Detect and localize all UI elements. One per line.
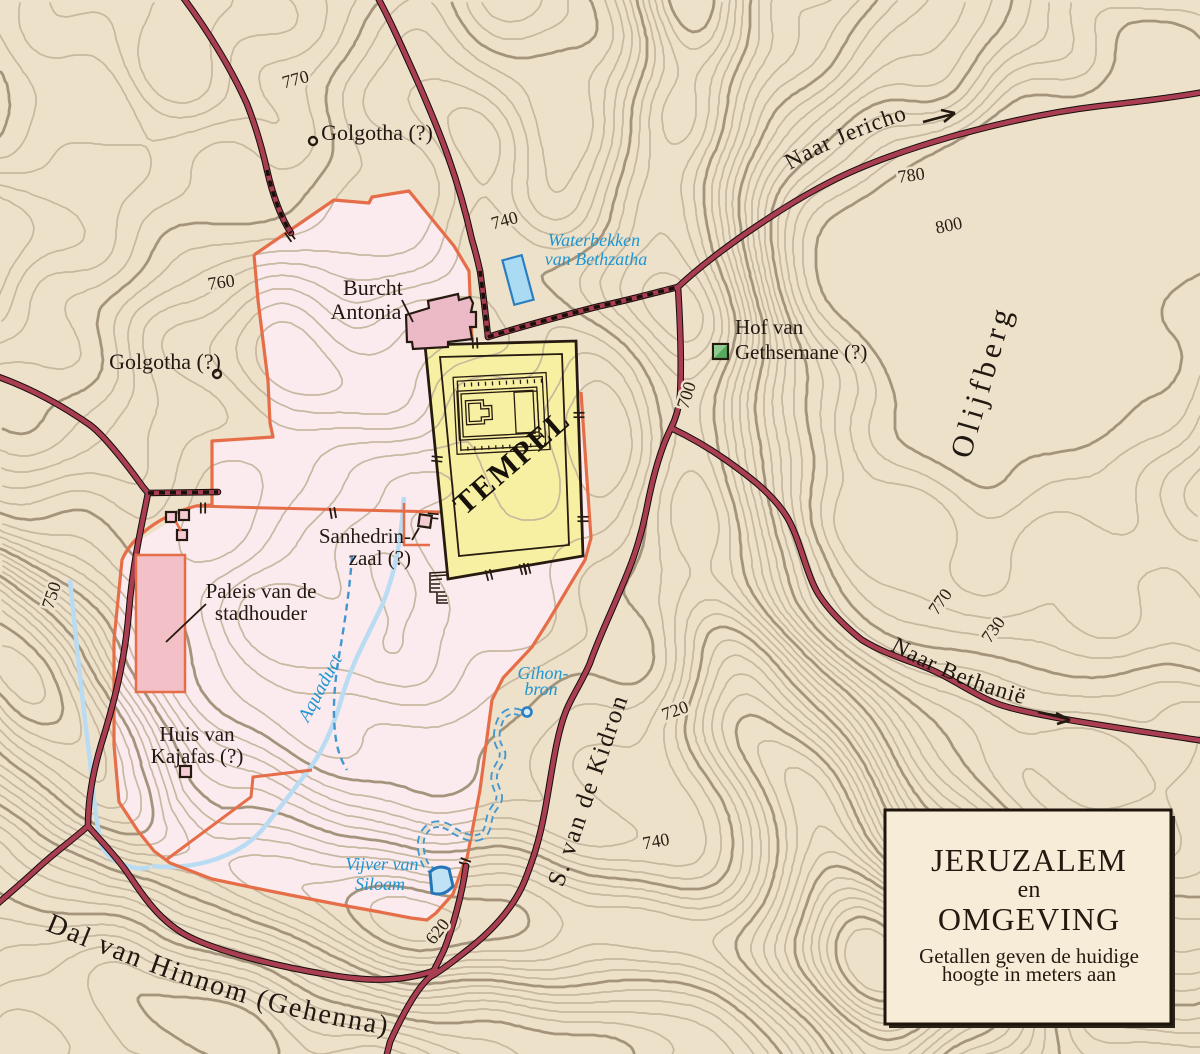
svg-text:Burcht: Burcht: [343, 275, 403, 300]
svg-text:Siloam: Siloam: [355, 874, 405, 894]
svg-text:Antonia: Antonia: [331, 299, 402, 324]
svg-text:zaal (?): zaal (?): [349, 546, 411, 570]
svg-text:en: en: [1018, 877, 1041, 903]
svg-text:JERUZALEM: JERUZALEM: [931, 842, 1127, 878]
svg-text:760: 760: [206, 270, 236, 294]
svg-text:hoogte in meters aan: hoogte in meters aan: [942, 962, 1117, 986]
svg-text:Kajafas (?): Kajafas (?): [151, 744, 244, 768]
svg-text:bron: bron: [524, 679, 557, 699]
svg-text:Golgotha (?): Golgotha (?): [321, 120, 433, 145]
svg-text:Sanhedrin-: Sanhedrin-: [319, 524, 411, 548]
svg-text:Paleis van de: Paleis van de: [206, 579, 317, 603]
svg-text:stadhouder: stadhouder: [215, 601, 307, 625]
svg-text:780: 780: [896, 163, 926, 187]
svg-text:Huis van: Huis van: [159, 722, 235, 746]
svg-text:van Bethzatha: van Bethzatha: [545, 249, 647, 269]
svg-text:Hof van: Hof van: [735, 315, 804, 339]
svg-text:Golgotha (?): Golgotha (?): [109, 349, 221, 374]
svg-text:Gethsemane (?): Gethsemane (?): [735, 340, 867, 364]
svg-text:OMGEVING: OMGEVING: [938, 901, 1120, 937]
svg-text:Vijver van: Vijver van: [345, 854, 418, 874]
svg-text:Waterbekken: Waterbekken: [548, 230, 640, 250]
